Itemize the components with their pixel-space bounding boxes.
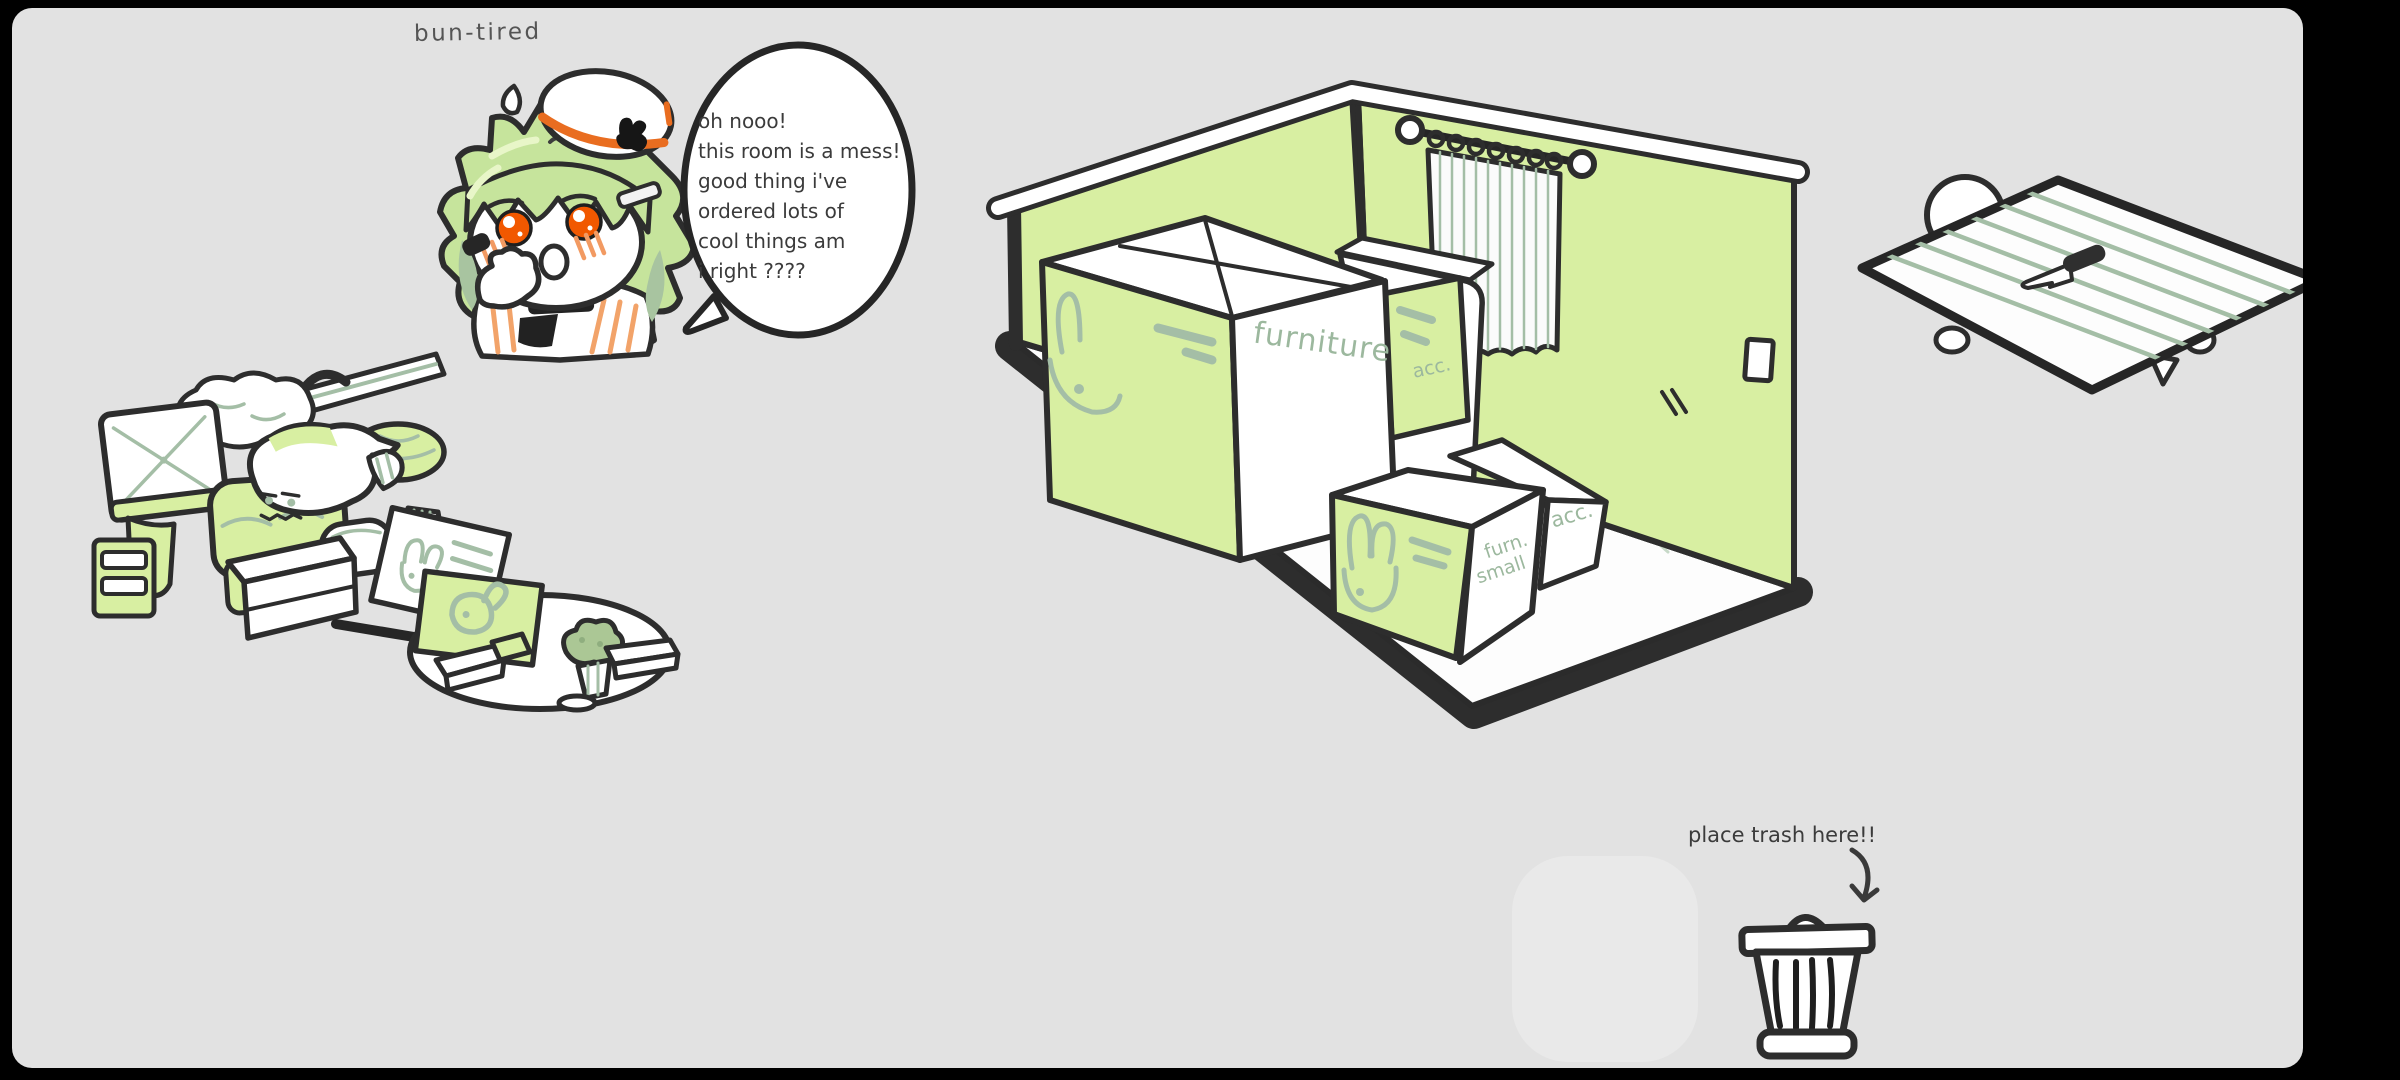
trash-base: [1760, 1032, 1854, 1056]
left-wall-edge: [1014, 206, 1016, 344]
game-stage: bun-tired: [0, 0, 2400, 1080]
box-acc-back[interactable]: acc.: [1382, 278, 1468, 438]
green-slab[interactable]: [492, 634, 530, 660]
speech-line-4: ordered lots of: [698, 199, 845, 223]
speech-line-2: this room is a mess!: [698, 139, 901, 163]
pot-dish: [559, 696, 595, 710]
chest-patch: [518, 314, 558, 347]
rod-finial-right: [1570, 152, 1594, 176]
speech-line-5: cool things am: [698, 229, 845, 253]
trash-can[interactable]: [1742, 917, 1873, 1056]
open-mouth: [541, 246, 567, 278]
trash-instruction: place trash here!!: [1688, 823, 1876, 847]
small-drawer-chest[interactable]: [94, 540, 154, 616]
speech-line-3: good thing i've: [698, 169, 847, 193]
artist-signature: bun-tired: [414, 19, 542, 47]
plant-pot: [578, 660, 610, 698]
speech-bubble: oh nooo! this room is a mess! good thing…: [684, 45, 912, 335]
wall-outlet: [1745, 339, 1774, 381]
speech-line-1: oh nooo!: [698, 109, 787, 133]
rod-finial-left: [1398, 118, 1422, 142]
speech-line-6: i right ????: [698, 259, 806, 283]
creature-foot: [1936, 328, 1968, 352]
trash-drop-smudge: [1512, 856, 1698, 1062]
trash-body: [1756, 952, 1858, 1036]
scene-svg: bun-tired: [0, 0, 2400, 1080]
